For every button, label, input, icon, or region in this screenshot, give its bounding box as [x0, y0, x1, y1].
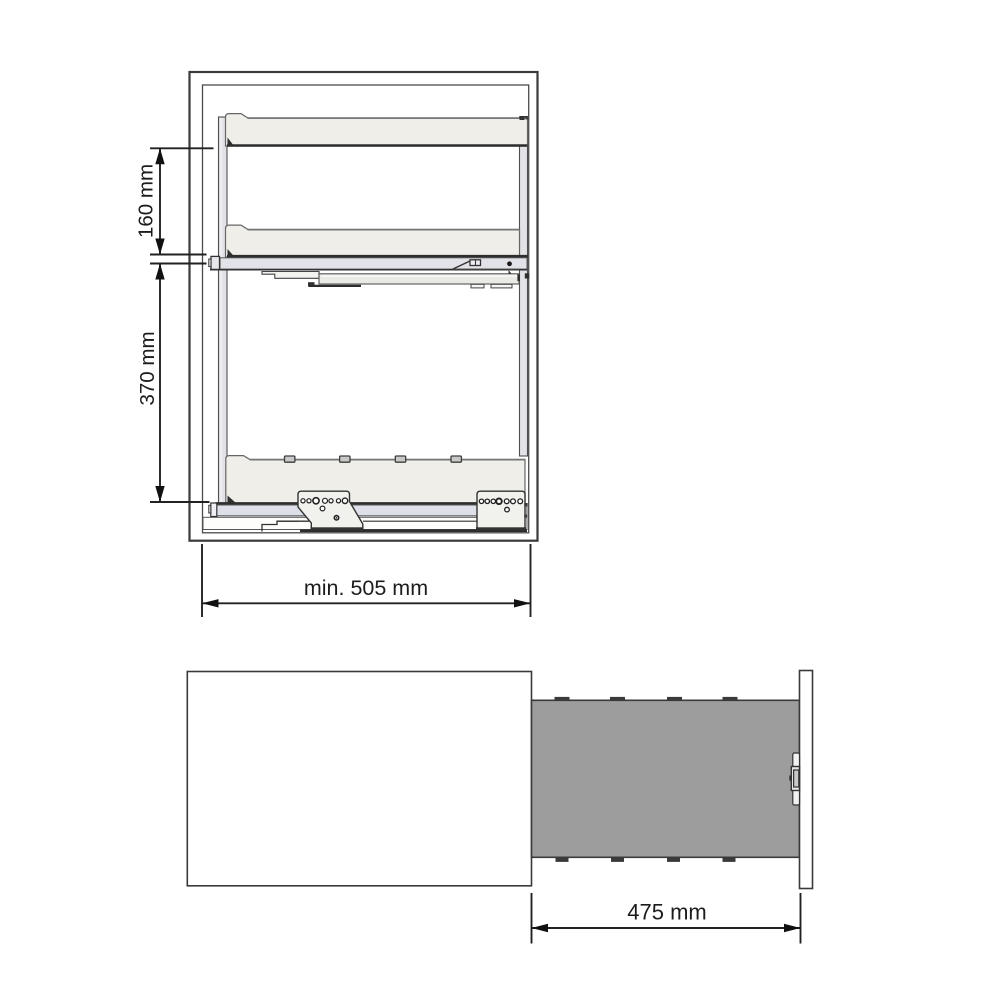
svg-text:475 mm: 475 mm — [627, 900, 706, 925]
svg-text:370 mm: 370 mm — [136, 331, 159, 405]
svg-text:min. 505 mm: min. 505 mm — [304, 576, 428, 600]
svg-text:160 mm: 160 mm — [135, 164, 158, 238]
